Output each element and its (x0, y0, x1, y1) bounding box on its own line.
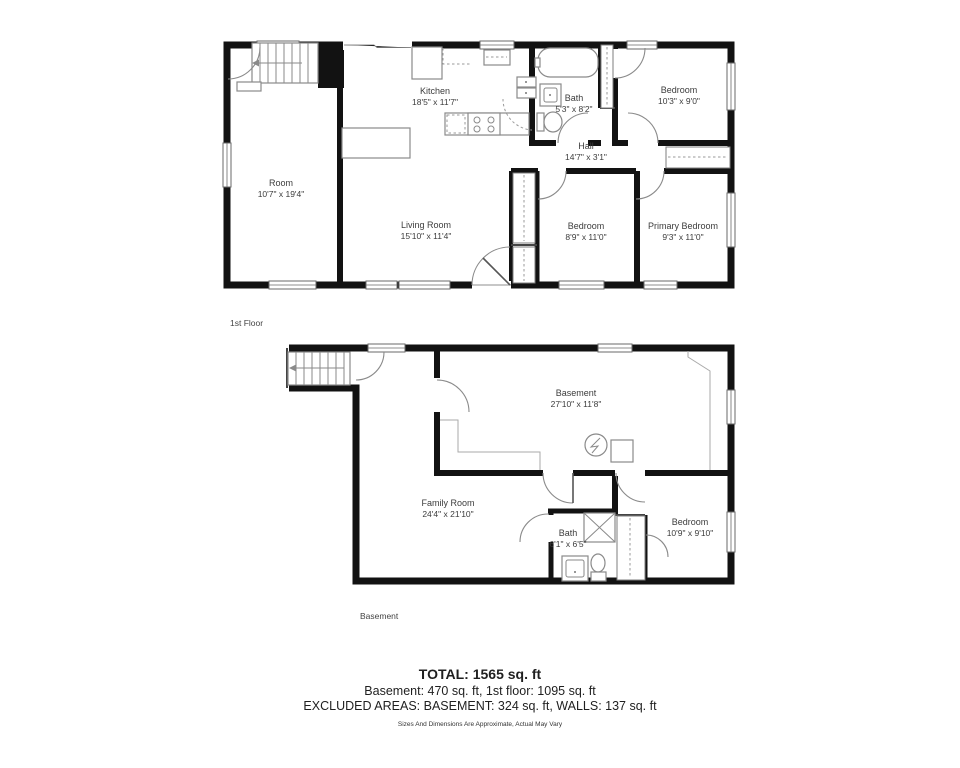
basement-plan (287, 344, 735, 581)
first-floor-plan (223, 40, 735, 289)
room-label-family-room: Family Room 24'4" x 21'10" (421, 498, 474, 519)
room-label-primary-bedroom: Primary Bedroom 9'3" x 11'0" (648, 221, 718, 242)
room-label-bath-basement: Bath 6'1" x 6'5" (549, 528, 586, 549)
water-heater-icon (585, 434, 607, 456)
room-label-room: Room 10'7" x 19'4" (258, 178, 305, 199)
closet-hatches (513, 45, 730, 283)
room-label-bedroom-topright: Bedroom 10'3" x 9'0" (658, 85, 700, 106)
patio-door (472, 247, 511, 289)
excluded-areas-text: EXCLUDED AREAS: BASEMENT: 324 sq. ft, WA… (0, 699, 960, 713)
counter-icon (412, 47, 442, 79)
stove-icon (468, 113, 500, 135)
area-summary: TOTAL: 1565 sq. ft Basement: 470 sq. ft,… (0, 666, 960, 728)
room-label-kitchen: Kitchen 18'5" x 11'7" (412, 86, 458, 107)
basement-sink-icon (562, 556, 588, 581)
total-area-text: TOTAL: 1565 sq. ft (0, 666, 960, 682)
island-icon (342, 128, 410, 158)
staircase-icon (237, 43, 318, 91)
room-label-living-room: Living Room 15'10" x 11'4" (401, 220, 452, 241)
room-label-bedroom-bottom: Bedroom 8'9" x 11'0" (565, 221, 606, 242)
basement-toilet-icon (591, 554, 606, 581)
room-label-bath-1f: Bath 5'3" x 8'2" (555, 93, 592, 114)
unfinished-area-lines (440, 351, 710, 470)
room-label-hall: Hall 14'7" x 3'1" (565, 141, 607, 162)
kitchen-sink-icon (517, 77, 536, 98)
floorplan-drawing (0, 0, 960, 768)
floorplan-page: Kitchen 18'5" x 11'7" Bath 5'3" x 8'2" B… (0, 0, 960, 768)
basement-caption: Basement (360, 611, 398, 621)
disclaimer-text: Sizes And Dimensions Are Approximate, Ac… (0, 721, 960, 728)
basement-staircase-icon (288, 352, 350, 385)
chimney-block (318, 42, 344, 88)
bath-fixtures (535, 48, 598, 132)
room-label-bedroom-basement: Bedroom 10'9" x 9'10" (667, 517, 714, 538)
basement-closet-hatch (617, 516, 645, 580)
toilet-icon (537, 112, 562, 132)
shower-icon (584, 513, 615, 542)
room-label-basement: Basement 27'10" x 11'8" (551, 388, 602, 409)
floor-areas-text: Basement: 470 sq. ft, 1st floor: 1095 sq… (0, 684, 960, 698)
utility-box-icon (611, 440, 633, 462)
basement-walls (287, 348, 731, 581)
first-floor-caption: 1st Floor (230, 318, 263, 328)
bathtub-icon (538, 48, 598, 77)
